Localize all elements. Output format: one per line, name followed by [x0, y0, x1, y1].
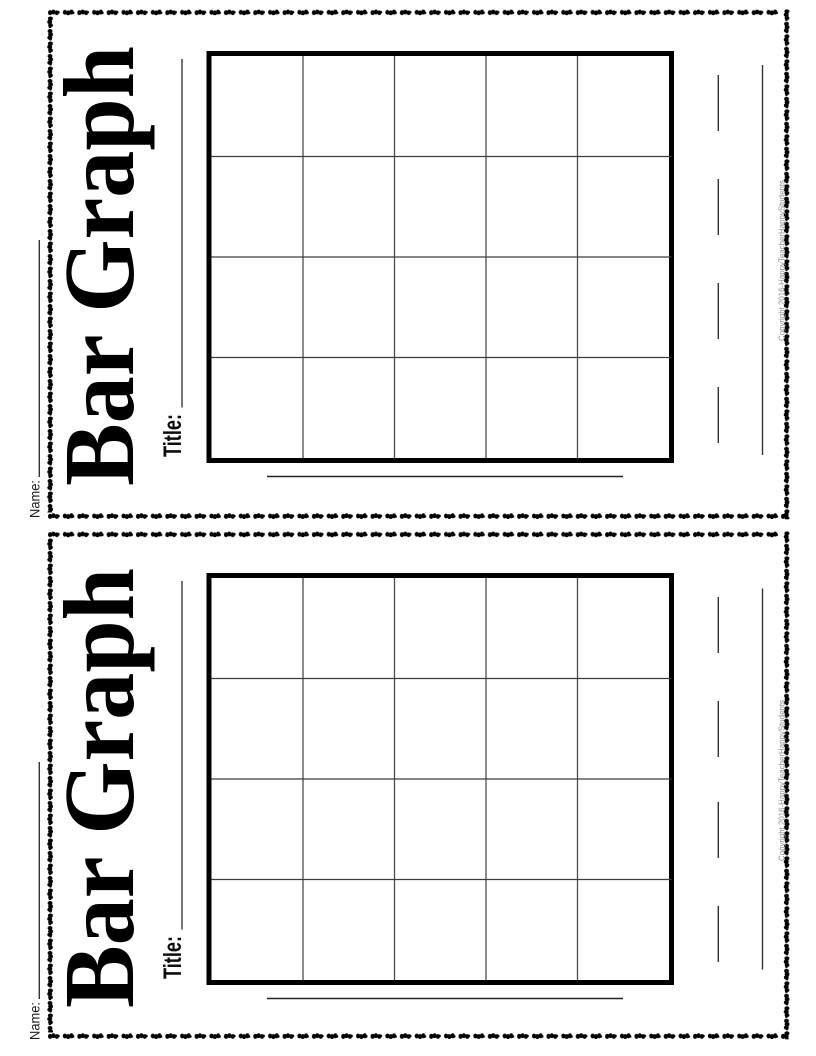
svg-text:Copyright 2016-HappyTeacherHap: Copyright 2016-HappyTeacherHappyStudents [777, 180, 787, 341]
svg-text:Copyright 2016-HappyTeacherHap: Copyright 2016-HappyTeacherHappyStudents [777, 700, 787, 861]
svg-text:Title:: Title: [159, 414, 187, 457]
svg-text:Bar Graph: Bar Graph [43, 46, 155, 486]
svg-text:Bar Graph: Bar Graph [43, 568, 155, 1008]
svg-text:Title:: Title: [159, 936, 187, 979]
svg-text:Name:: Name: [27, 480, 43, 518]
svg-text:Name:: Name: [27, 1002, 43, 1040]
